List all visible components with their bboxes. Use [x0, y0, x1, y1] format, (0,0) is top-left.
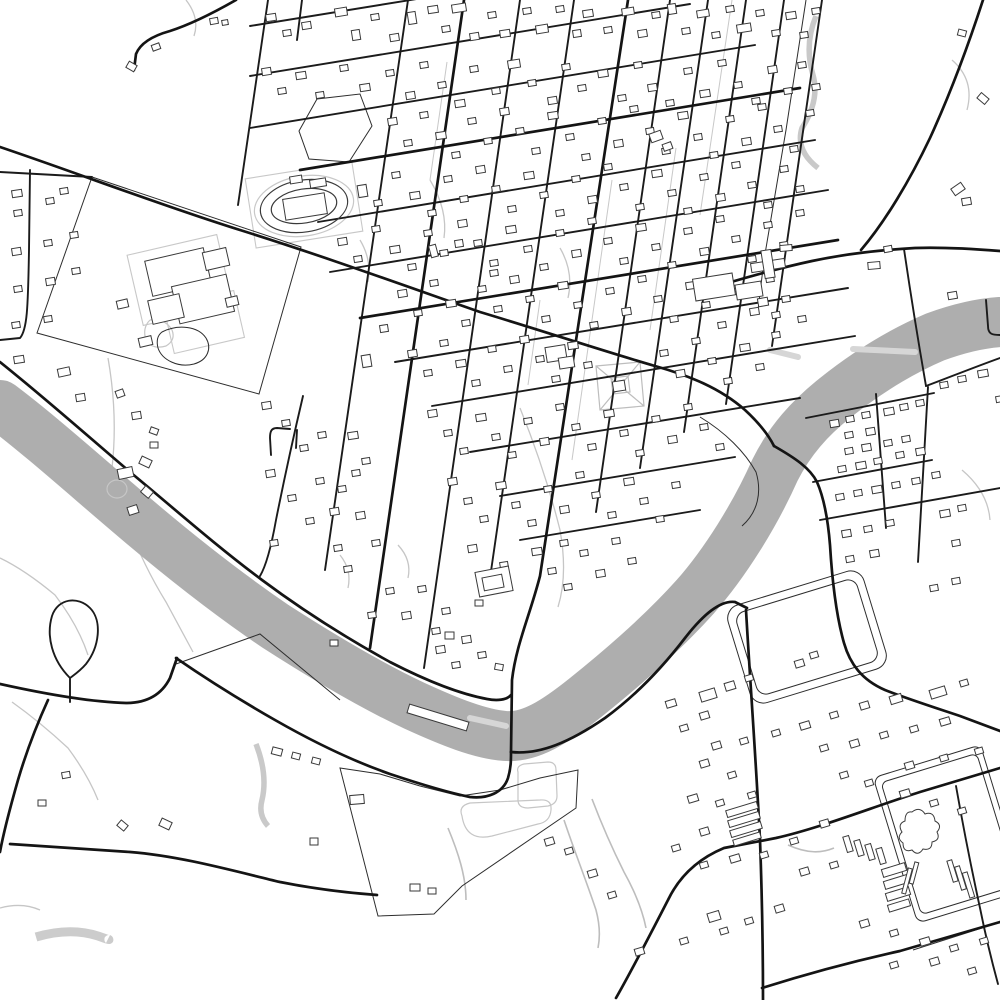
bld-downtown-footprint	[470, 32, 480, 40]
bld-se-footprint	[889, 929, 898, 937]
bld-downtown-footprint	[374, 199, 383, 206]
bld-downtown-footprint	[732, 235, 741, 242]
bld-rural-footprint	[132, 411, 142, 419]
bld-downtown-footprint	[520, 335, 530, 343]
bld-downtown-footprint	[726, 5, 735, 12]
gray-roads-path	[788, 845, 834, 852]
bld-downtown-footprint	[402, 611, 412, 619]
roads-minor-path	[238, 0, 268, 205]
bld-suburb-footprint	[939, 509, 950, 518]
bld-downtown-footprint	[638, 275, 647, 282]
bld-downtown-footprint	[470, 65, 479, 72]
bld-downtown-footprint	[656, 515, 665, 522]
bld-downtown-footprint	[735, 281, 763, 300]
bld-downtown-footprint	[588, 217, 597, 224]
bld-downtown-footprint	[576, 471, 585, 478]
bld-downtown-footprint	[692, 337, 701, 344]
bld-rural-footprint	[117, 820, 128, 831]
bld-se-footprint	[949, 944, 958, 952]
bld-downtown-footprint	[566, 133, 575, 140]
bld-downtown-footprint	[573, 29, 582, 37]
bld-downtown-footprint	[572, 249, 582, 257]
bld-downtown-footprint	[351, 29, 360, 40]
bld-downtown-footprint	[540, 263, 549, 270]
bld-downtown-footprint	[756, 363, 765, 370]
bld-suburb-footprint	[902, 435, 911, 442]
layer-tree-blob	[899, 809, 939, 853]
bld-rural-footprint	[311, 757, 320, 765]
bld-se-footprint	[711, 741, 722, 750]
bld-downtown-footprint	[638, 29, 648, 37]
bld-downtown-footprint	[726, 115, 735, 122]
bld-downtown-footprint	[790, 145, 799, 152]
bld-suburb-footprint	[854, 489, 863, 496]
bld-downtown-footprint	[678, 111, 689, 119]
bld-rural-footprint	[662, 142, 673, 152]
bld-downtown-footprint	[508, 451, 517, 458]
layer-bld-downtown	[116, 3, 820, 731]
bld-downtown-footprint	[544, 485, 553, 492]
bld-se-footprint	[967, 967, 976, 975]
bld-se-footprint	[843, 835, 853, 852]
bld-se-footprint	[909, 725, 918, 733]
bld-downtown-footprint	[782, 295, 791, 302]
bld-suburb-footprint	[836, 493, 845, 500]
bld-downtown-footprint	[588, 195, 598, 203]
bld-downtown-footprint	[282, 419, 291, 426]
bld-downtown-footprint	[578, 84, 587, 91]
bld-rural-footprint	[44, 239, 53, 246]
gray-bands-path	[256, 744, 268, 826]
bld-rural-footprint	[12, 321, 21, 328]
bld-downtown-footprint	[556, 403, 565, 410]
bld-downtown-footprint	[494, 305, 503, 312]
bld-se-footprint	[665, 699, 677, 709]
bld-downtown-footprint	[670, 315, 679, 322]
roads-major-path	[774, 446, 1000, 731]
bld-se-footprint	[819, 819, 830, 828]
bld-suburb-footprint	[912, 477, 921, 484]
bld-se-footprint	[809, 651, 818, 659]
bld-se-footprint	[747, 791, 756, 799]
bld-se-footprint	[679, 724, 688, 732]
bld-suburb-footprint	[952, 577, 961, 584]
bld-downtown-footprint	[462, 635, 472, 643]
bld-downtown-footprint	[340, 64, 349, 71]
bld-downtown-footprint	[614, 139, 624, 147]
bld-downtown-footprint	[556, 229, 565, 236]
bld-se-footprint	[789, 837, 798, 845]
bld-rural-footprint	[117, 467, 134, 480]
bld-downtown-footprint	[694, 133, 703, 140]
bld-suburb-footprint	[916, 399, 925, 406]
bld-downtown-footprint	[496, 481, 507, 489]
bld-suburb-footprint	[829, 419, 839, 427]
bld-downtown-footprint	[768, 65, 778, 73]
bld-downtown-footprint	[392, 171, 401, 178]
bld-downtown-footprint	[410, 191, 421, 199]
tree-blob-path	[899, 809, 939, 853]
bld-rural-footprint	[151, 43, 161, 51]
bld-downtown-footprint	[796, 209, 805, 216]
bld-downtown-footprint	[390, 245, 401, 253]
bld-downtown-footprint	[478, 651, 487, 658]
bld-rural-footprint	[957, 29, 966, 37]
bld-suburb-footprint	[884, 439, 893, 446]
bld-downtown-footprint	[532, 147, 541, 154]
bld-downtown-footprint	[536, 355, 545, 362]
bld-downtown-footprint	[568, 341, 579, 349]
bld-downtown-footprint	[542, 315, 551, 322]
bld-downtown-footprint	[712, 31, 721, 38]
streams-path	[962, 470, 990, 520]
bld-downtown-footprint	[693, 273, 736, 301]
bld-suburb-footprint	[996, 395, 1000, 402]
bld-se-footprint	[799, 721, 811, 731]
bld-downtown-footprint	[316, 477, 325, 484]
bld-downtown-footprint	[428, 409, 438, 417]
sandbars-path	[770, 350, 798, 357]
bld-se-footprint	[544, 837, 555, 846]
bld-downtown-footprint	[460, 195, 469, 202]
roads-minor-path	[918, 387, 928, 562]
bld-downtown-footprint	[758, 103, 767, 110]
bld-downtown-footprint	[488, 11, 497, 18]
bld-se-footprint	[671, 844, 680, 852]
bld-downtown-footprint	[451, 3, 466, 13]
bld-downtown-footprint	[334, 544, 343, 551]
bld-se-footprint	[904, 761, 915, 770]
bld-se-footprint	[939, 717, 951, 727]
bld-suburb-footprint	[841, 529, 851, 537]
bld-downtown-footprint	[354, 255, 363, 262]
roads-minor-path	[820, 488, 1000, 520]
bld-se-footprint	[794, 659, 805, 668]
bld-suburb-footprint	[900, 403, 909, 410]
roads-minor-path	[500, 457, 735, 496]
bld-downtown-footprint	[500, 107, 510, 115]
bld-downtown-footprint	[404, 139, 413, 146]
roads-major-path	[762, 922, 1000, 988]
layer-thin-lines	[37, 0, 985, 950]
bld-downtown-footprint	[490, 259, 499, 266]
bld-downtown-footprint	[772, 29, 781, 36]
bld-downtown-footprint	[508, 205, 517, 212]
bld-downtown-footprint	[338, 485, 347, 492]
bld-se-footprint	[699, 711, 710, 720]
bld-downtown-footprint	[812, 7, 821, 14]
bld-rural-footprint	[361, 354, 372, 367]
bld-downtown-footprint	[338, 237, 348, 245]
bld-se-footprint	[744, 917, 753, 925]
bld-se-footprint	[939, 754, 948, 762]
bld-downtown-footprint	[596, 569, 606, 577]
bld-downtown-footprint	[718, 59, 727, 66]
bld-se-footprint	[957, 807, 966, 815]
bld-downtown-footprint	[492, 185, 501, 192]
bld-se-footprint	[829, 861, 838, 869]
bld-downtown-footprint	[636, 223, 647, 231]
bld-se-footprint	[849, 739, 860, 748]
bld-downtown-footprint	[702, 301, 711, 308]
bld-downtown-footprint	[424, 229, 433, 236]
bld-rural-footprint	[150, 442, 158, 448]
roads-minor-path	[684, 0, 746, 432]
bld-downtown-footprint	[772, 331, 781, 338]
sandbars-path	[853, 349, 915, 352]
bld-downtown-footprint	[420, 61, 429, 68]
bld-downtown-footprint	[440, 339, 449, 346]
bld-downtown-footprint	[512, 501, 521, 508]
bld-downtown-footprint	[296, 71, 307, 79]
bld-suburb-footprint	[846, 415, 855, 422]
roads-minor-path	[297, 0, 302, 40]
bld-se-footprint	[744, 674, 753, 682]
bld-downtown-footprint	[604, 237, 613, 244]
thin-rects-footprint	[734, 577, 880, 696]
bld-downtown-footprint	[558, 281, 569, 289]
bld-downtown-footprint	[460, 447, 469, 454]
bld-suburb-footprint	[874, 457, 883, 464]
bld-rural-footprint	[428, 888, 436, 894]
bld-downtown-footprint	[398, 289, 408, 297]
bld-downtown-footprint	[510, 275, 520, 283]
bld-downtown-footprint	[526, 295, 535, 302]
bld-downtown-footprint	[540, 437, 550, 445]
bld-downtown-footprint	[442, 607, 451, 614]
bld-downtown-footprint	[774, 125, 783, 132]
bld-rural-footprint	[271, 747, 282, 756]
thin-rects-footprint	[724, 567, 890, 706]
bld-downtown-footprint	[764, 221, 773, 228]
bld-downtown-footprint	[684, 207, 693, 214]
bld-suburb-footprint	[864, 525, 873, 532]
bld-downtown-footprint	[432, 627, 441, 634]
bld-downtown-footprint	[444, 429, 453, 436]
bld-downtown-footprint	[710, 151, 719, 158]
bld-downtown-footprint	[583, 9, 594, 17]
bld-downtown-footprint	[468, 117, 477, 124]
bld-se-footprint	[887, 899, 910, 912]
bld-downtown-footprint	[556, 5, 565, 12]
bld-downtown-footprint	[700, 89, 711, 97]
bld-suburb-footprint	[883, 407, 894, 416]
bld-downtown-footprint	[283, 193, 328, 220]
bld-se-footprint	[729, 854, 741, 864]
bld-se-footprint	[699, 827, 710, 836]
bld-downtown-footprint	[478, 285, 487, 292]
bld-rural-footprint	[149, 427, 159, 435]
bld-suburb-footprint	[855, 461, 866, 470]
bld-se-footprint	[679, 937, 688, 945]
bld-downtown-footprint	[283, 29, 292, 36]
roads-minor-path	[470, 398, 800, 452]
bld-suburb-footprint	[772, 311, 781, 318]
bld-se-footprint	[959, 679, 968, 687]
bld-downtown-footprint	[528, 79, 537, 86]
bld-se-footprint	[829, 711, 838, 719]
bld-rural-footprint	[14, 209, 23, 216]
bld-rural-footprint	[38, 800, 46, 806]
bld-downtown-footprint	[500, 29, 511, 37]
bld-downtown-footprint	[368, 611, 377, 618]
bld-downtown-footprint	[316, 91, 325, 98]
bld-downtown-footprint	[116, 299, 129, 309]
bld-rural-footprint	[115, 389, 125, 398]
bld-downtown-footprint	[516, 127, 525, 134]
bld-suburb-footprint	[947, 291, 957, 299]
bld-downtown-footprint	[622, 307, 632, 315]
bld-downtown-footprint	[580, 549, 589, 556]
bld-rural-footprint	[330, 640, 338, 646]
bld-rural-footprint	[210, 17, 219, 24]
bld-downtown-footprint	[598, 69, 609, 77]
bld-se-footprint	[799, 867, 810, 876]
bld-downtown-footprint	[524, 171, 535, 179]
bld-rural-footprint	[868, 261, 881, 269]
bld-rural-footprint	[72, 267, 81, 274]
bld-downtown-footprint	[588, 443, 597, 450]
bld-downtown-footprint	[386, 69, 395, 76]
bld-downtown-footprint	[362, 457, 371, 464]
bld-se-footprint	[889, 693, 903, 704]
bld-downtown-footprint	[700, 247, 710, 255]
bld-downtown-footprint	[476, 413, 487, 421]
bld-downtown-footprint	[750, 307, 760, 315]
bld-rural-footprint	[46, 277, 56, 285]
bld-rural-footprint	[12, 247, 22, 255]
bld-downtown-footprint	[612, 380, 625, 392]
bld-downtown-footprint	[672, 481, 681, 488]
bld-se-footprint	[607, 891, 616, 899]
bld-se-footprint	[724, 681, 736, 692]
bld-downtown-footprint	[572, 175, 581, 182]
bld-downtown-footprint	[356, 511, 366, 519]
marsh-path	[36, 932, 109, 940]
bld-downtown-footprint	[560, 505, 570, 513]
bld-downtown-footprint	[424, 369, 433, 376]
roads-minor-path	[318, 140, 815, 222]
bld-downtown-footprint	[488, 345, 497, 352]
bld-downtown-footprint	[371, 13, 380, 20]
bld-downtown-footprint	[622, 7, 635, 16]
bld-suburb-footprint	[958, 375, 967, 382]
bld-se-footprint	[889, 961, 898, 969]
bld-downtown-footprint	[535, 24, 548, 34]
bld-downtown-footprint	[604, 26, 613, 33]
bld-downtown-footprint	[628, 557, 637, 564]
bld-downtown-footprint	[716, 215, 725, 222]
streams-path	[398, 545, 409, 578]
bld-rural-footprint	[70, 231, 79, 238]
bld-downtown-footprint	[442, 25, 451, 32]
bld-downtown-footprint	[604, 163, 613, 170]
bld-downtown-footprint	[660, 349, 669, 356]
bld-se-footprint	[634, 947, 645, 956]
bld-downtown-footprint	[560, 539, 569, 546]
bld-downtown-footprint	[548, 111, 559, 119]
bld-downtown-footprint	[742, 137, 752, 145]
bld-rural-footprint	[14, 285, 23, 292]
alleys-path	[430, 62, 447, 180]
bld-rural-footprint	[14, 355, 25, 363]
bld-downtown-footprint	[708, 357, 717, 364]
bld-se-footprint	[929, 957, 940, 966]
bld-downtown-footprint	[684, 67, 693, 74]
roads-major-path	[616, 768, 1000, 998]
bld-downtown-footprint	[564, 583, 573, 590]
bld-rural-footprint	[222, 20, 229, 26]
bld-downtown-footprint	[652, 11, 661, 18]
bld-se-footprint	[839, 771, 848, 779]
bld-se-footprint	[771, 729, 780, 737]
bld-downtown-footprint	[462, 319, 471, 326]
gray-roads-path	[448, 828, 466, 900]
roads-major-path	[861, 0, 983, 250]
bld-downtown-footprint	[676, 369, 686, 377]
bld-se-footprint	[865, 843, 875, 860]
bld-se-footprint	[974, 747, 983, 755]
bld-downtown-footprint	[420, 111, 429, 118]
roads-major-path	[134, 0, 236, 70]
bld-downtown-footprint	[684, 403, 693, 410]
bld-downtown-footprint	[798, 315, 807, 322]
bld-downtown-footprint	[552, 375, 561, 382]
bld-downtown-footprint	[736, 23, 751, 33]
bld-rural-footprint	[380, 324, 389, 332]
bld-downtown-footprint	[348, 431, 359, 439]
bld-downtown-footprint	[592, 491, 601, 498]
bld-downtown-footprint	[798, 61, 807, 68]
bld-rural-footprint	[475, 600, 483, 606]
layer-bld-rural	[12, 17, 990, 894]
gray-roads-path	[564, 820, 599, 948]
streams-path	[0, 558, 88, 655]
bld-rural-footprint	[57, 367, 70, 377]
bld-downtown-footprint	[668, 261, 677, 268]
bld-downtown-footprint	[408, 263, 417, 270]
map-canvas	[0, 0, 1000, 1000]
streams-path	[0, 905, 40, 910]
bld-downtown-footprint	[800, 31, 809, 38]
bld-downtown-footprint	[524, 245, 533, 252]
bld-downtown-footprint	[682, 27, 691, 34]
streams-path	[560, 248, 570, 298]
bld-downtown-footprint	[428, 5, 439, 13]
bld-rural-footprint	[12, 189, 23, 197]
bld-se-footprint	[707, 910, 721, 922]
bld-downtown-footprint	[334, 7, 347, 17]
bld-downtown-footprint	[740, 343, 751, 351]
bld-suburb-footprint	[871, 485, 882, 494]
bld-downtown-footprint	[428, 209, 437, 216]
bld-downtown-footprint	[524, 417, 533, 424]
bld-downtown-footprint	[640, 497, 649, 504]
roads-major-path	[0, 658, 177, 703]
bld-downtown-footprint	[618, 94, 627, 101]
bld-suburb-footprint	[932, 471, 941, 478]
bld-downtown-footprint	[438, 81, 447, 88]
bld-downtown-footprint	[360, 83, 371, 91]
bld-se-footprint	[859, 919, 870, 928]
gray-outlines-path	[461, 800, 551, 837]
bld-se-footprint	[854, 839, 864, 856]
bld-downtown-footprint	[748, 255, 757, 262]
bld-downtown-footprint	[784, 87, 793, 94]
bld-downtown-footprint	[624, 477, 635, 485]
bld-downtown-footprint	[636, 449, 645, 456]
bld-downtown-footprint	[476, 165, 486, 173]
